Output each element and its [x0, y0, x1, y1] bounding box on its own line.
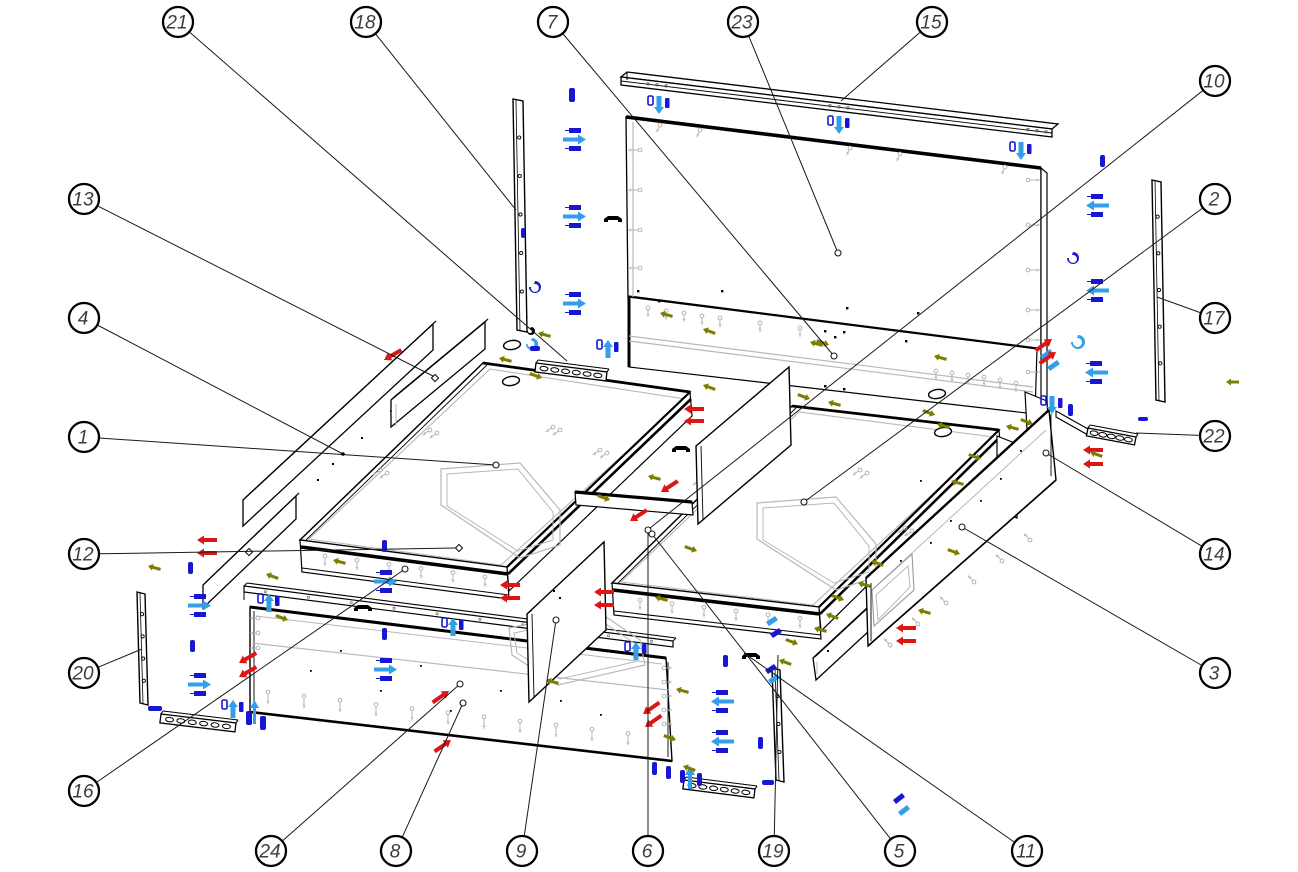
svg-text:16: 16	[72, 782, 94, 803]
svg-text:9: 9	[516, 842, 527, 863]
svg-text:23: 23	[730, 13, 753, 34]
svg-text:2: 2	[1208, 190, 1220, 211]
svg-text:22: 22	[1202, 427, 1225, 448]
svg-text:5: 5	[894, 842, 905, 863]
svg-text:1: 1	[78, 428, 89, 449]
svg-text:24: 24	[258, 842, 280, 863]
svg-text:20: 20	[71, 664, 94, 685]
svg-text:7: 7	[547, 13, 559, 34]
svg-text:12: 12	[72, 545, 94, 566]
svg-text:11: 11	[1016, 842, 1036, 863]
svg-text:21: 21	[165, 13, 187, 34]
svg-text:14: 14	[1203, 545, 1224, 566]
svg-text:17: 17	[1203, 309, 1226, 330]
svg-text:4: 4	[78, 309, 89, 330]
svg-text:3: 3	[1209, 664, 1220, 685]
svg-text:6: 6	[642, 842, 653, 863]
svg-text:10: 10	[1203, 72, 1225, 93]
svg-text:8: 8	[390, 842, 401, 863]
svg-text:19: 19	[762, 842, 784, 863]
svg-text:15: 15	[920, 13, 942, 34]
svg-text:18: 18	[354, 13, 376, 34]
svg-text:13: 13	[72, 190, 94, 211]
